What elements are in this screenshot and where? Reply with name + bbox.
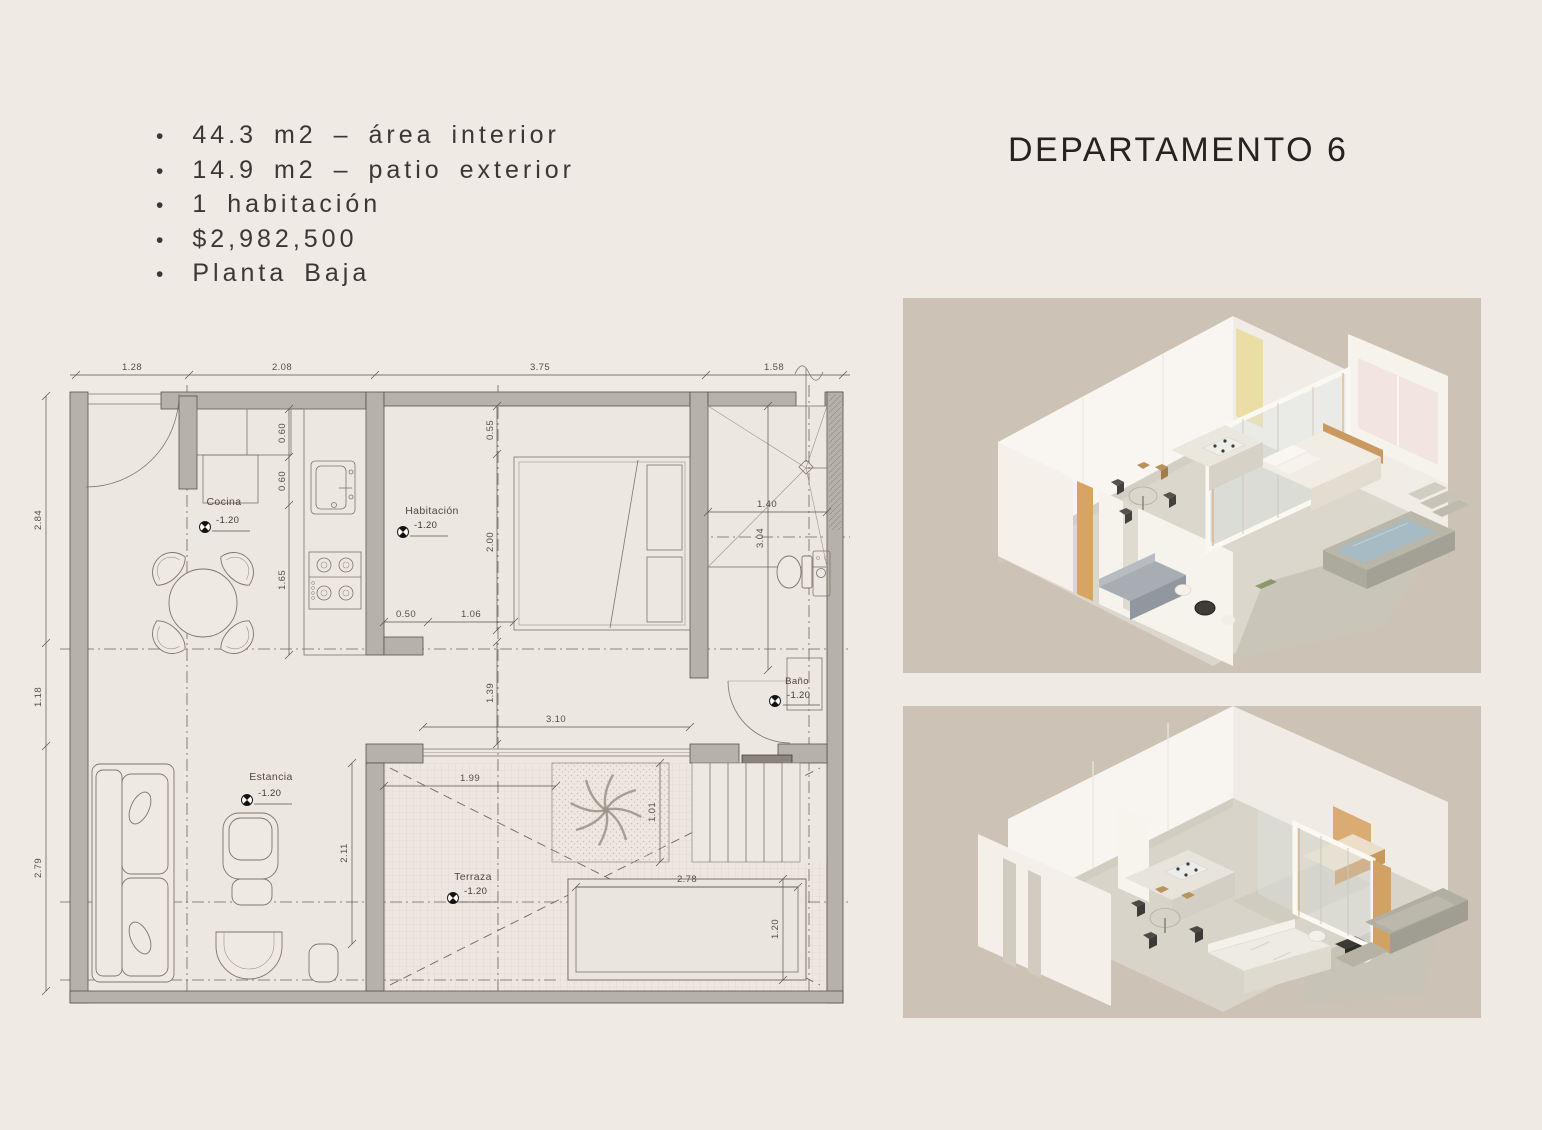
spec-text: Planta Baja <box>192 259 370 288</box>
dim-label: 0.60 <box>277 423 288 443</box>
spec-text: 1 habitación <box>192 190 381 219</box>
dim-label: 0.55 <box>485 420 496 440</box>
stairs <box>692 763 800 862</box>
dim-label: 2.79 <box>33 858 44 878</box>
spec-price: $2,982,500 <box>156 225 575 260</box>
room-label-terraza: Terraza <box>454 871 492 883</box>
spec-text: $2,982,500 <box>192 225 357 254</box>
break-symbol <box>795 366 823 381</box>
spec-bedrooms: 1 habitación <box>156 190 575 225</box>
dim-label: 1.99 <box>460 773 480 784</box>
room-label-habitacion: Habitación <box>405 505 459 517</box>
dim-label: 1.65 <box>277 570 288 590</box>
spec-area-interior: 44.3 m2 – área interior <box>156 121 575 156</box>
isometric-render-1 <box>903 298 1481 673</box>
dim-label: 2.08 <box>272 362 292 373</box>
render-panel-bottom <box>903 706 1481 1018</box>
sofa <box>92 764 174 982</box>
floor-plan-drawing: 1.28 2.08 3.75 1.58 2.84 1.18 2.79 0.60 … <box>25 350 860 1018</box>
wood-door <box>1077 481 1093 601</box>
toilet <box>777 556 812 588</box>
spec-floor-level: Planta Baja <box>156 259 575 294</box>
dim-label: 3.10 <box>546 714 566 725</box>
elevation-value: -1.20 <box>787 690 810 701</box>
dim-label: 1.01 <box>647 802 658 822</box>
dim-label: 1.40 <box>757 499 777 510</box>
elevation-value: -1.20 <box>464 886 487 897</box>
page-title: DEPARTAMENTO 6 <box>1008 131 1348 170</box>
wood-pillar <box>1373 860 1391 954</box>
room-label-bano: Baño <box>785 676 809 687</box>
dim-label: 2.11 <box>339 843 350 862</box>
dim-label: 2.84 <box>33 510 44 530</box>
dim-label: 1.06 <box>461 609 481 620</box>
wall-hatch <box>829 394 841 530</box>
spec-text: 14.9 m2 – patio exterior <box>192 156 575 185</box>
room-label-cocina: Cocina <box>206 496 241 508</box>
dim-label: 1.20 <box>770 919 781 939</box>
isometric-render-2 <box>903 706 1481 1018</box>
dim-label: 2.78 <box>677 874 697 885</box>
presentation-slide: 44.3 m2 – área interior 14.9 m2 – patio … <box>0 0 1542 1130</box>
dim-label: 1.58 <box>764 362 784 373</box>
tall-cabinet <box>1118 806 1149 902</box>
dim-label: 2.00 <box>485 532 496 552</box>
spec-patio-exterior: 14.9 m2 – patio exterior <box>156 156 575 191</box>
dim-label: 1.28 <box>122 362 142 373</box>
render-panel-top <box>903 298 1481 673</box>
specs-list: 44.3 m2 – área interior 14.9 m2 – patio … <box>156 121 575 294</box>
room-label-estancia: Estancia <box>249 771 292 783</box>
elevation-value: -1.20 <box>258 788 281 799</box>
side-table <box>309 944 338 982</box>
dim-label: 0.60 <box>277 471 288 491</box>
dim-label: 1.39 <box>485 683 496 703</box>
elevation-value: -1.20 <box>216 515 239 526</box>
dim-label: 1.18 <box>33 687 44 707</box>
dim-label: 3.75 <box>530 362 550 373</box>
elevation-value: -1.20 <box>414 520 437 531</box>
spec-text: 44.3 m2 – área interior <box>192 121 560 150</box>
dining-table <box>169 569 237 637</box>
dim-label: 3.04 <box>755 528 766 548</box>
dim-label: 0.50 <box>396 609 416 620</box>
